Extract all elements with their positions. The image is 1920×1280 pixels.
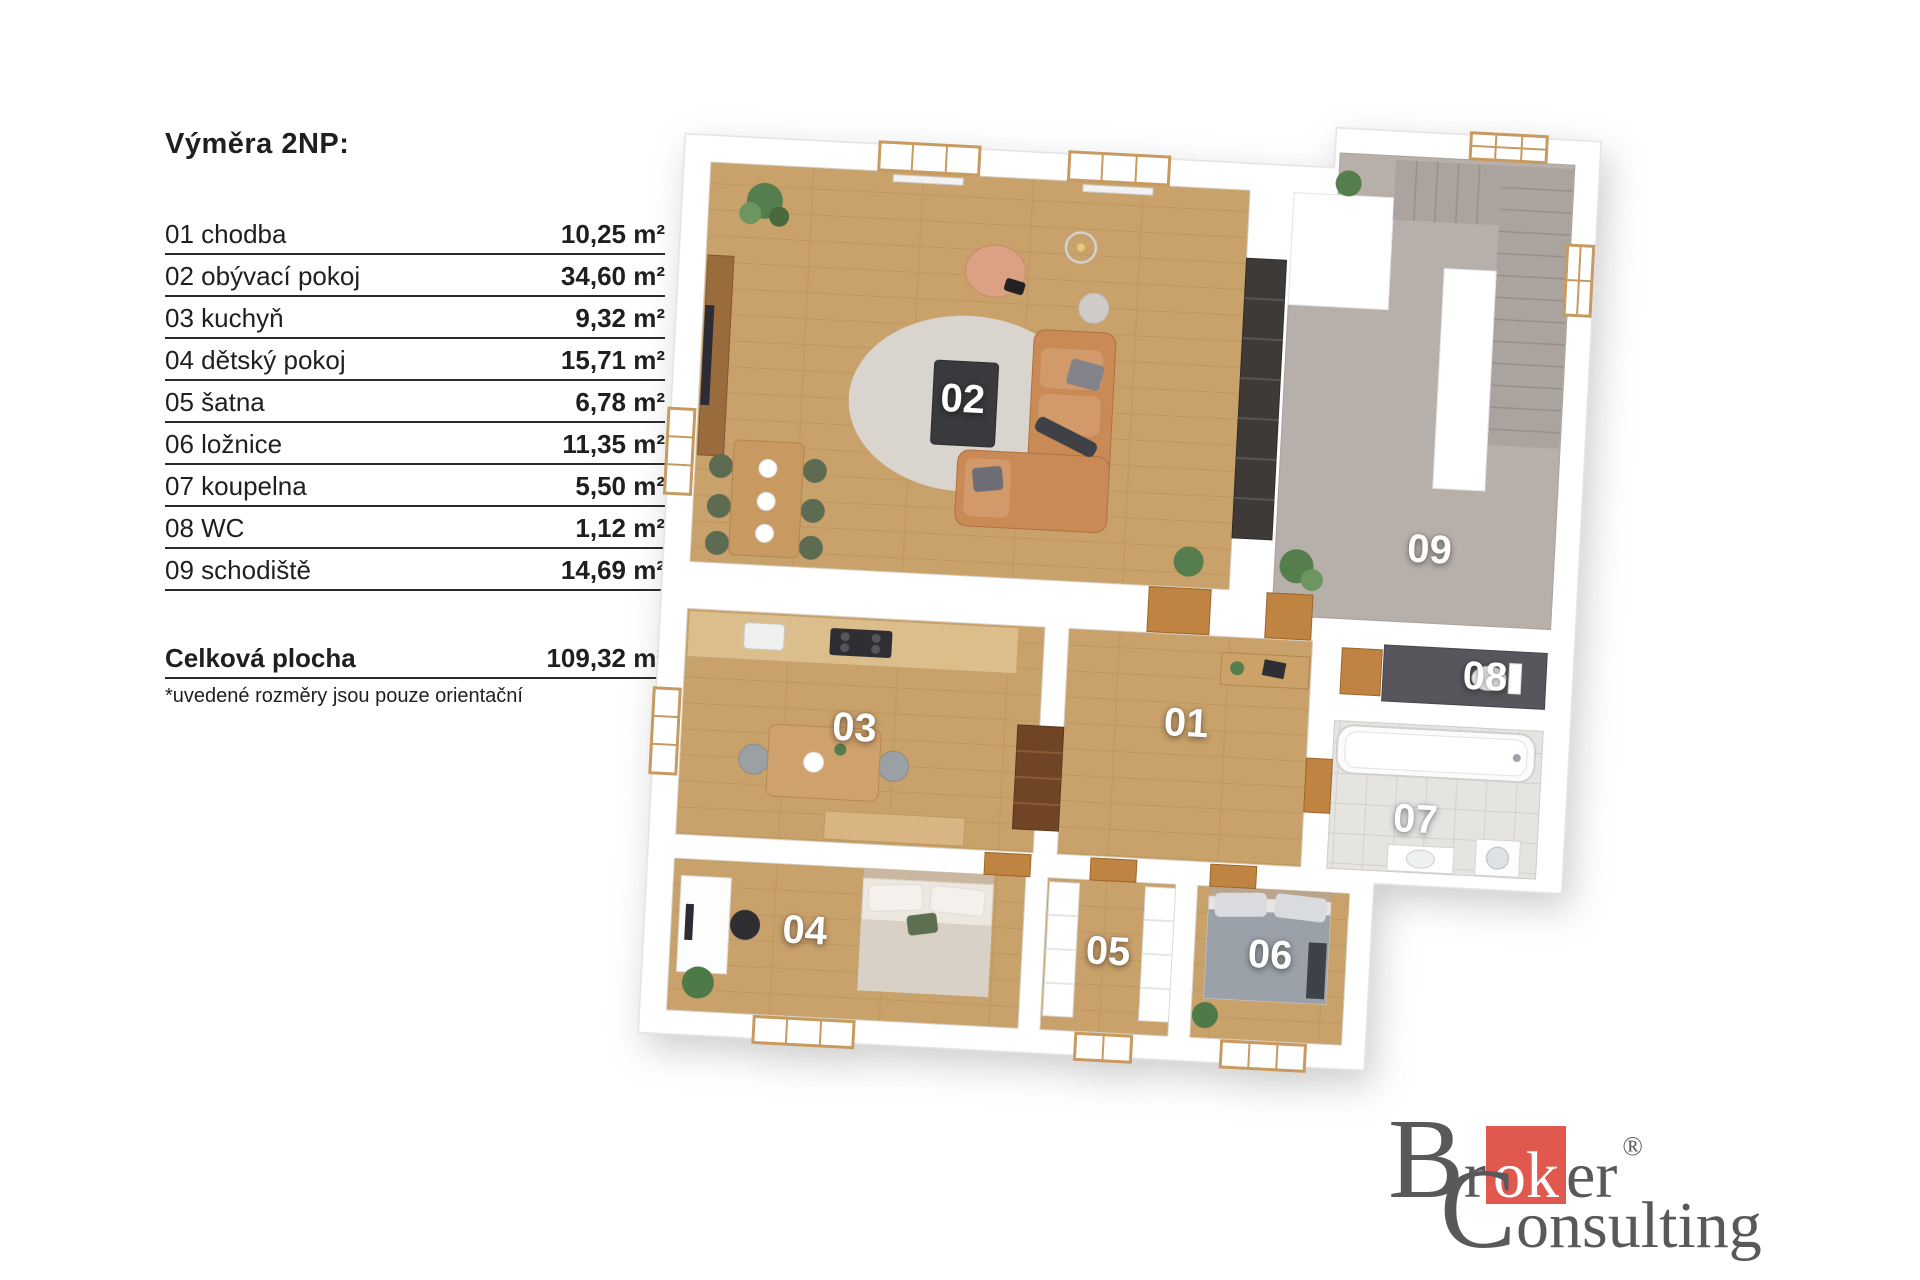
room-label-08: 08 [1462,654,1509,701]
legend-footnote: *uvedené rozměry jsou pouze orientační [165,685,665,708]
wardrobe-window [1074,1033,1131,1062]
kitchen-window [650,688,680,774]
room-name: 07 koupelna [165,471,307,502]
room-label-02: 02 [939,376,986,423]
door-bathroom [1304,758,1333,813]
room-name: 06 ložnice [165,429,282,460]
child-window [753,1016,854,1047]
room-name: 05 šatna [165,387,265,418]
room-name: 02 obývací pokoj [165,261,360,292]
hall-desk [1220,652,1310,689]
door-wardrobe [1090,858,1137,882]
door-bedroom [1210,864,1257,888]
room-label-05: 05 [1085,928,1132,975]
total-label: Celková plocha [165,643,356,674]
logo-letter-c: C [1440,1152,1516,1266]
legend-title: Výměra 2NP: [165,128,665,161]
bathroom-sink [1387,844,1454,873]
room-label-06: 06 [1247,932,1294,979]
washing-machine [1475,839,1521,877]
legend-row-09: 09 schodiště 14,69 m² [165,549,665,591]
room-name: 04 dětský pokoj [165,345,346,376]
floor-plan-page: Výměra 2NP: 01 chodba 10,25 m² 02 obývac… [0,0,1920,1280]
legend-row-08: 08 WC 1,12 m² [165,507,665,549]
dining-window [665,408,695,494]
legend-panel: Výměra 2NP: 01 chodba 10,25 m² 02 obývac… [165,128,665,708]
floor-plan: 01 02 03 04 05 06 07 08 09 [602,77,1652,1108]
logo-line-consulting: Consulting [1440,1152,1762,1266]
door-childroom [984,852,1031,876]
room-label-01: 01 [1163,700,1210,747]
bathtub [1336,725,1536,783]
cooktop [829,628,892,658]
room-label-04: 04 [781,907,828,954]
room-label-07: 07 [1392,796,1439,843]
child-bed [858,868,994,997]
legend-row-03: 03 kuchyň 9,32 m² [165,297,665,339]
door-living-hall [1147,587,1211,635]
room-label-03: 03 [831,705,878,752]
skylight-window [1470,133,1547,163]
legend-row-05: 05 šatna 6,78 m² [165,381,665,423]
room-name: 08 WC [165,513,244,544]
wardrobe-left [1043,882,1080,1017]
legend-total-row: Celková plocha 109,32 m² [165,637,665,679]
bedroom-window [1220,1041,1305,1071]
legend-row-01: 01 chodba 10,25 m² [165,213,665,255]
wardrobe-right [1139,887,1176,1022]
room-name: 01 chodba [165,219,286,250]
room-label-09: 09 [1406,527,1453,574]
room-name: 09 schodiště [165,555,311,586]
door-hall-staircase [1265,593,1313,640]
broker-consulting-logo: Broker® Consulting [1388,1086,1828,1276]
legend-row-06: 06 ložnice 11,35 m² [165,423,665,465]
legend-row-04: 04 dětský pokoj 15,71 m² [165,339,665,381]
door-wc [1340,648,1382,696]
throw-blanket [1306,942,1327,999]
legend-row-07: 07 koupelna 5,50 m² [165,465,665,507]
dark-cabinet [1012,725,1063,831]
room-name: 03 kuchyň [165,303,284,334]
legend-row-02: 02 obývací pokoj 34,60 m² [165,255,665,297]
kitchen-sink [743,622,784,650]
staircase-side-window [1564,245,1594,316]
nightstand [1334,895,1349,918]
